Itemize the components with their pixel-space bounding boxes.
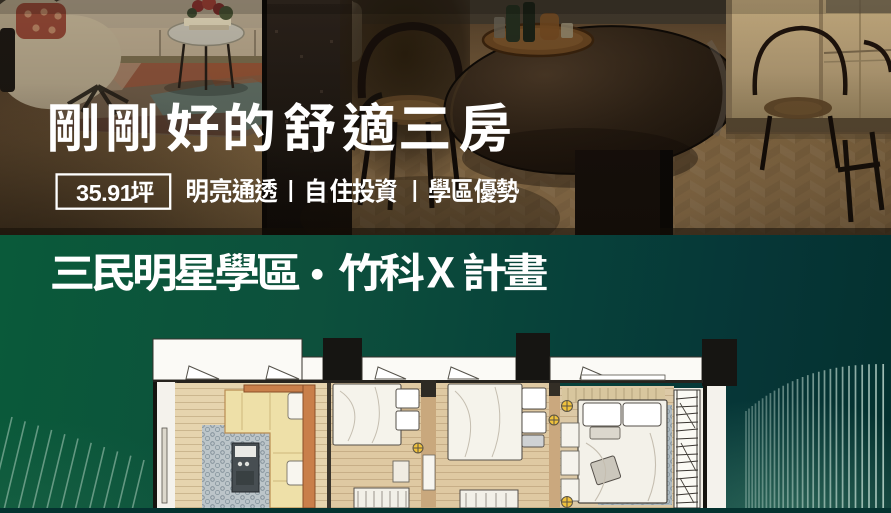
svg-text:35.91: 35.91 <box>76 180 133 206</box>
